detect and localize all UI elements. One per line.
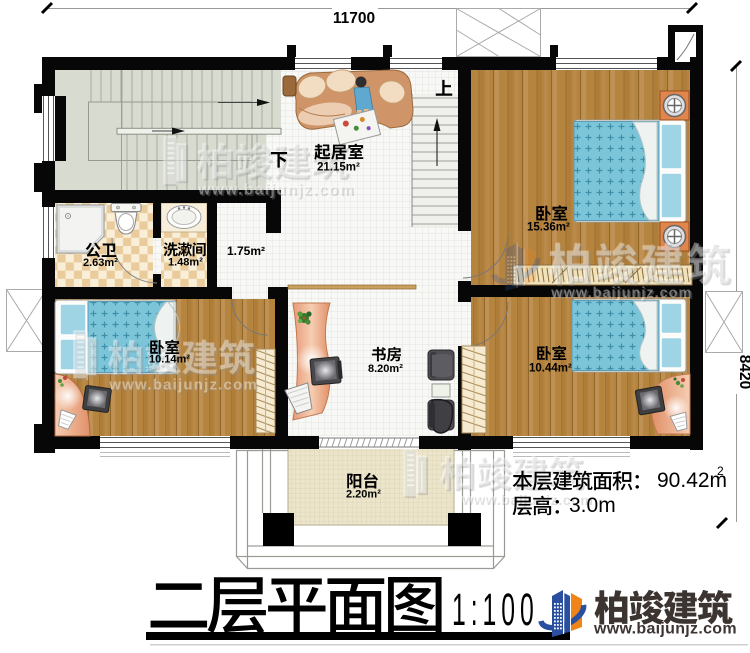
- svg-text:21.15m²: 21.15m²: [317, 162, 360, 174]
- svg-text:15.36m²: 15.36m²: [527, 222, 570, 234]
- svg-text:8420: 8420: [736, 355, 750, 389]
- svg-text:11700: 11700: [333, 10, 375, 27]
- svg-text:1.48m²: 1.48m²: [168, 257, 203, 269]
- svg-text:3.0m: 3.0m: [569, 494, 616, 517]
- svg-text:2.63m²: 2.63m²: [83, 257, 118, 269]
- svg-text:www.baijunjz.com: www.baijunjz.com: [197, 181, 354, 198]
- svg-text:8.20m²: 8.20m²: [368, 363, 403, 375]
- svg-text:www.baijunjz.com: www.baijunjz.com: [593, 621, 737, 638]
- svg-text:2: 2: [717, 464, 724, 478]
- svg-text:10.14m²: 10.14m²: [149, 354, 190, 366]
- svg-text:1.75m²: 1.75m²: [227, 244, 265, 258]
- svg-text:www.baijunjz.com: www.baijunjz.com: [550, 285, 692, 301]
- svg-text:www.baijunjz.com: www.baijunjz.com: [108, 376, 258, 393]
- svg-text:1:100: 1:100: [452, 584, 539, 635]
- svg-text:2.20m²: 2.20m²: [346, 489, 381, 501]
- svg-text:10.44m²: 10.44m²: [529, 363, 572, 375]
